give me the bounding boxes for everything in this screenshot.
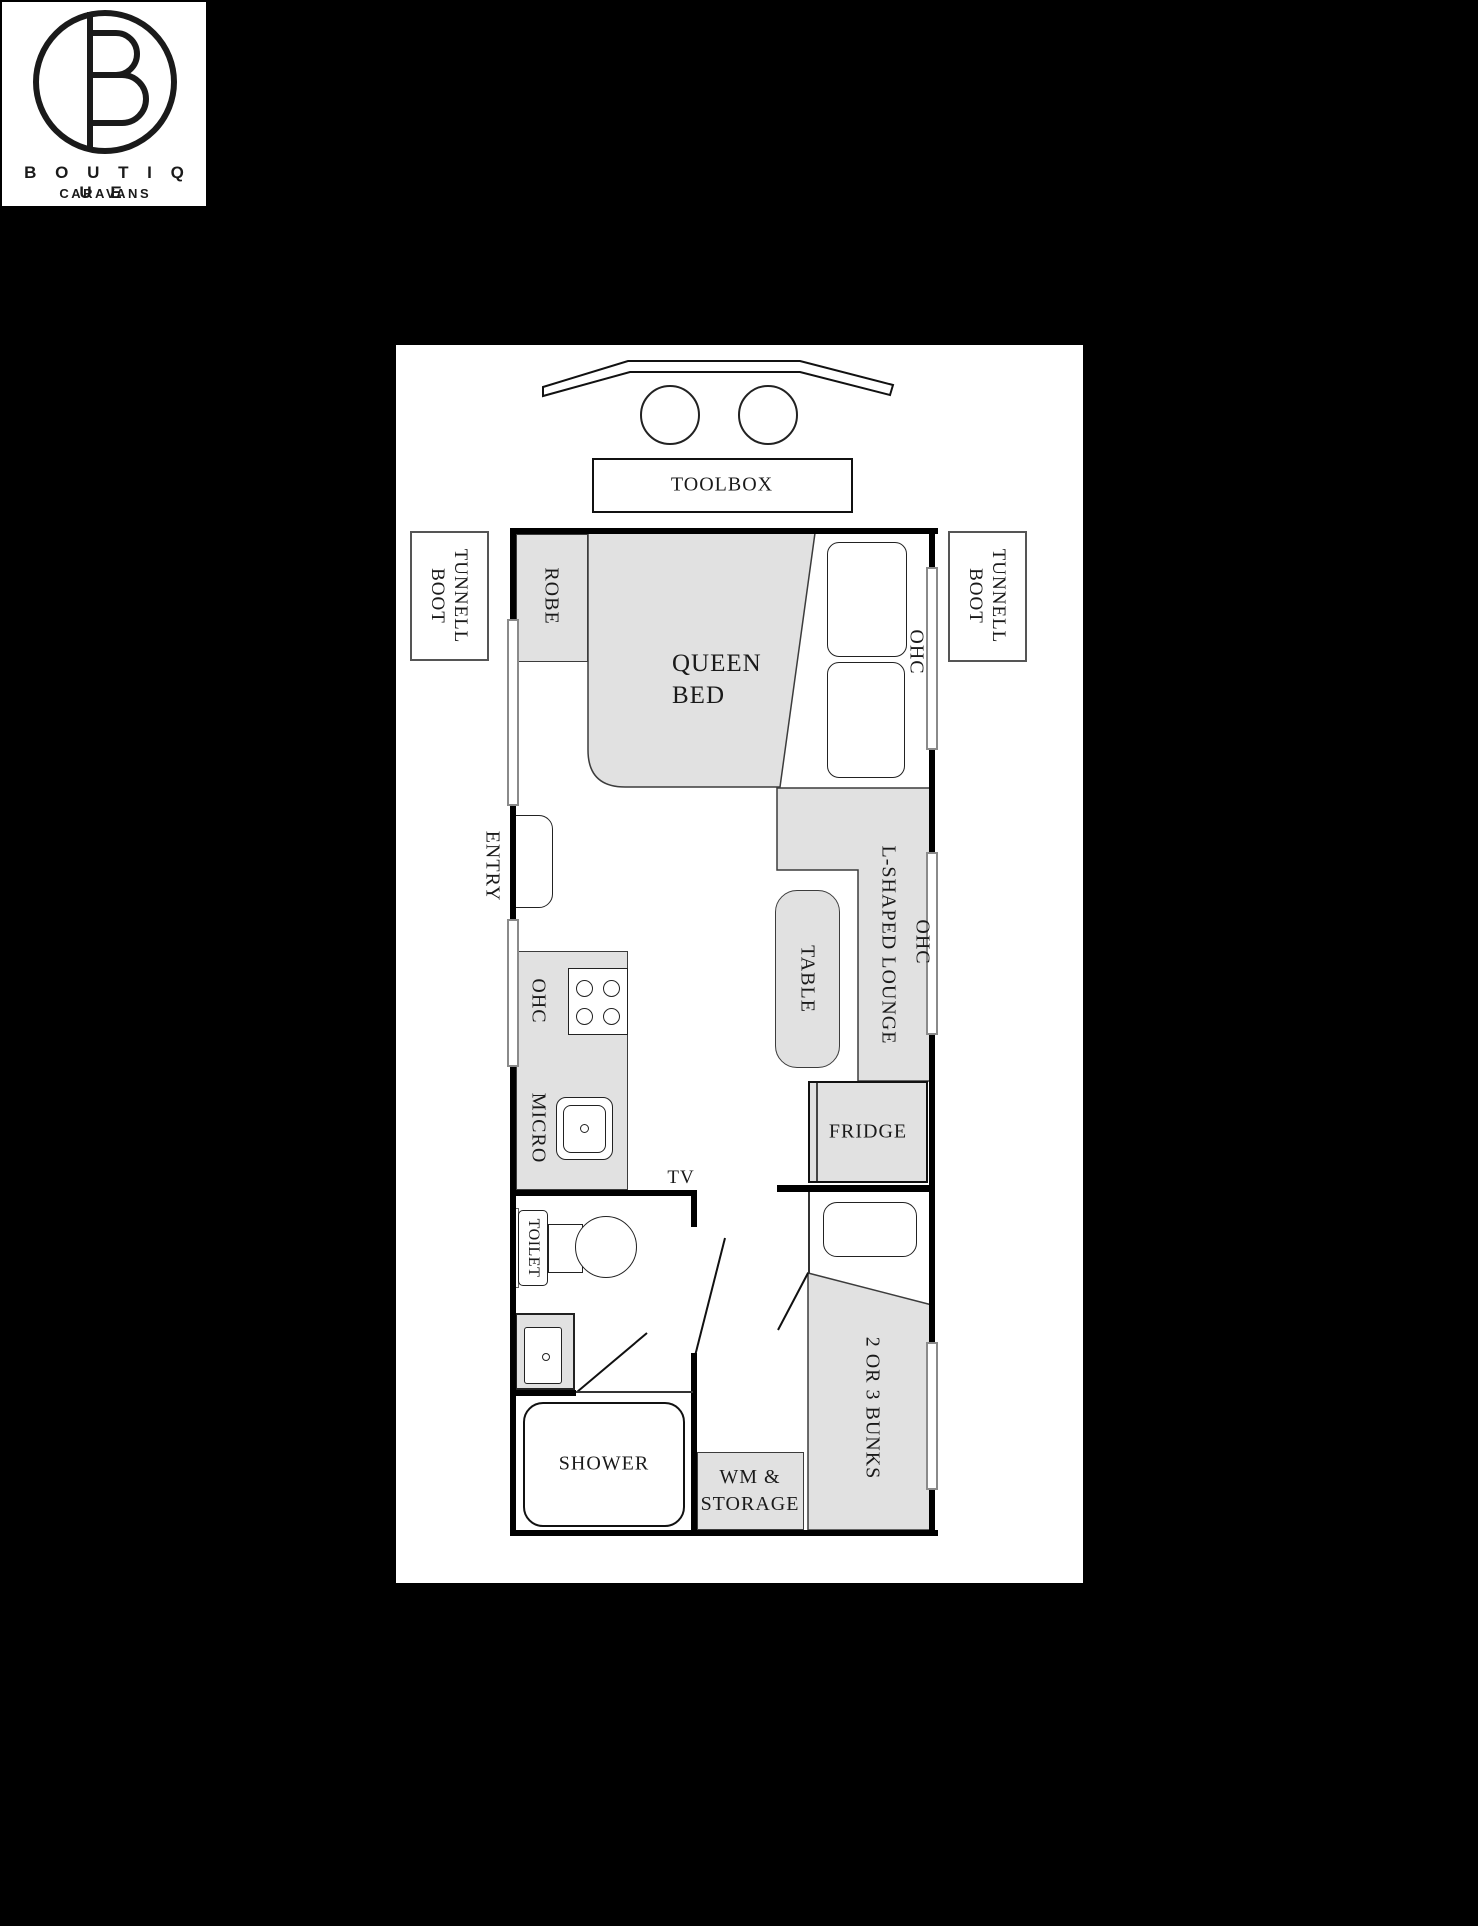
queen-bed-line2: BED	[672, 680, 762, 712]
floorplan-panel: TOOLBOX TUNNELL BOOT TUNNELL BOOT ROBE Q…	[396, 345, 1083, 1583]
wall-bathroom-right	[691, 1353, 697, 1536]
bunk-room-window-box	[823, 1202, 917, 1257]
window-nearside-2	[507, 919, 519, 1067]
entry-label: ENTRY	[481, 831, 504, 902]
wall-front	[510, 528, 938, 534]
drawbar-shape	[543, 361, 893, 396]
wall-bathroom-top	[513, 1190, 697, 1196]
burner-icon	[576, 1008, 593, 1025]
gas-bottle-right-icon	[738, 385, 798, 445]
toilet-label: TOILET	[524, 1219, 542, 1278]
bunk-door-swing-line	[778, 1273, 808, 1330]
tunnel-boot-right-line2: BOOT	[964, 549, 987, 644]
tunnel-boot-left-label: TUNNELL BOOT	[426, 549, 472, 644]
toilet-bowl	[575, 1216, 637, 1278]
logo-sub-text: CARAVANS	[2, 186, 206, 201]
cooktop	[568, 968, 628, 1035]
wall-vanity	[510, 1390, 576, 1396]
ohc-lounge-label: OHC	[911, 919, 934, 964]
wm-storage-line1: WM &	[701, 1464, 800, 1491]
shower-room-line	[576, 1391, 693, 1393]
lounge-label: L-SHAPED LOUNGE	[877, 846, 900, 1045]
hall-door-swing-line	[695, 1238, 725, 1356]
wall-nearside-middle	[510, 803, 516, 923]
queen-bed-label: QUEEN BED	[672, 648, 762, 712]
micro-label: MICRO	[527, 1093, 550, 1164]
bedside-cabinet-bottom	[827, 662, 905, 778]
gas-bottle-left-icon	[640, 385, 700, 445]
window-nearside-1	[507, 619, 519, 806]
wm-storage-line2: STORAGE	[701, 1491, 800, 1518]
window-offside-1	[926, 567, 938, 750]
bedside-cabinet-top	[827, 542, 907, 657]
wall-rear	[510, 1530, 938, 1536]
wall-bunkroom-divider	[777, 1185, 935, 1192]
shower-door-swing-line	[577, 1333, 647, 1392]
bunkroom-line	[808, 1192, 810, 1273]
toolbox-label: TOOLBOX	[671, 474, 773, 497]
fridge-label: FRIDGE	[829, 1121, 907, 1144]
burner-icon	[603, 980, 620, 997]
wm-storage-label: WM & STORAGE	[701, 1464, 800, 1518]
queen-bed-line1: QUEEN	[672, 648, 762, 680]
tunnel-boot-left-line2: BOOT	[426, 549, 449, 644]
sink-drain-icon	[580, 1124, 589, 1133]
bunks-label: 2 OR 3 BUNKS	[861, 1337, 884, 1480]
burner-icon	[576, 980, 593, 997]
tunnel-boot-left-line1: TUNNELL	[449, 549, 472, 644]
wall-nearside-upper	[510, 528, 516, 623]
ohc-kitchen-label: OHC	[527, 978, 550, 1023]
tv-label: TV	[667, 1167, 694, 1189]
tunnel-boot-right-line1: TUNNELL	[987, 549, 1010, 644]
vanity-drain-icon	[542, 1353, 550, 1361]
logo-card: B O U T I Q U E CARAVANS	[2, 2, 206, 206]
table-label: TABLE	[796, 945, 819, 1013]
boutique-b-logo-icon	[2, 2, 206, 160]
tunnel-boot-right-label: TUNNELL BOOT	[964, 549, 1010, 644]
page: { "logo": { "brand": "B O U T I Q U E", …	[0, 0, 1478, 1926]
entry-door-leaf	[514, 815, 553, 908]
ohc-bedroom-label: OHC	[905, 629, 928, 674]
robe-label: ROBE	[540, 567, 563, 624]
burner-icon	[603, 1008, 620, 1025]
window-offside-3	[926, 1342, 938, 1490]
wall-bathroom-nib	[691, 1190, 697, 1227]
shower-label: SHOWER	[559, 1453, 649, 1476]
wall-nearside-lower	[510, 1065, 516, 1536]
fridge-door-line	[816, 1083, 818, 1181]
